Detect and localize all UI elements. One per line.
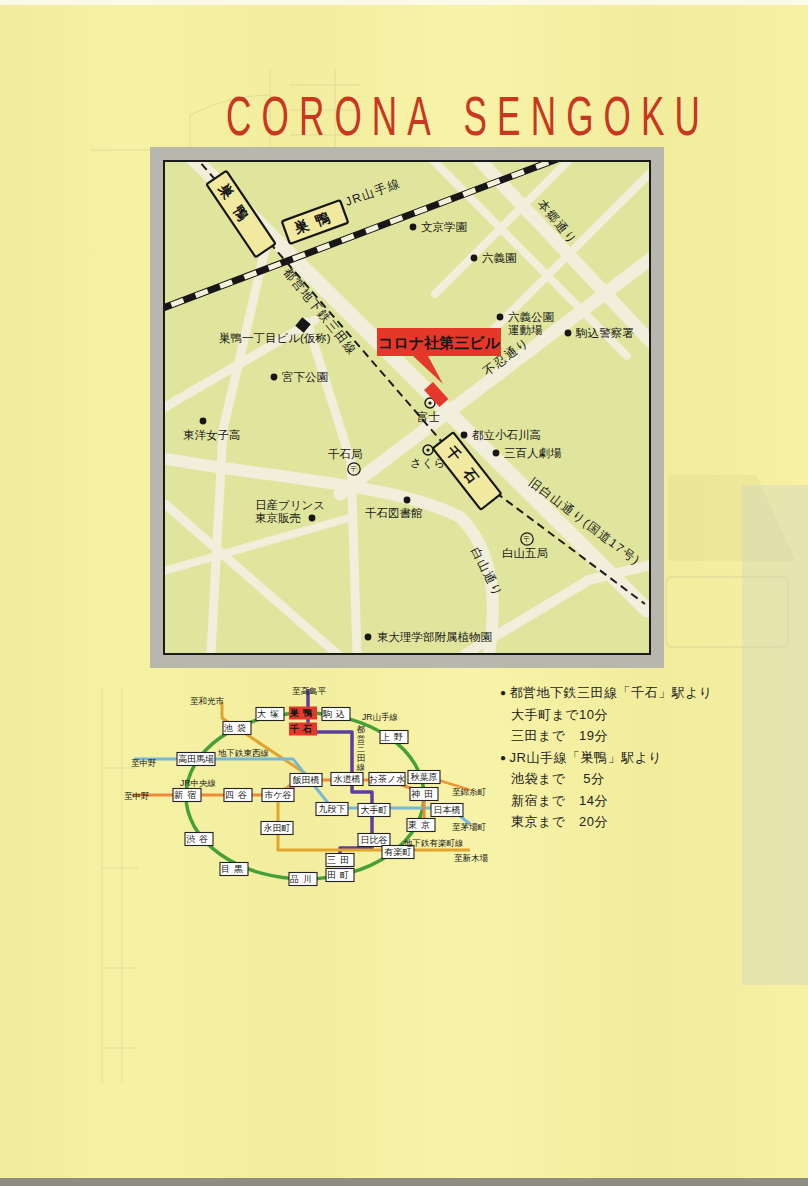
diagram-line-label: 地下鉄有楽町線	[403, 838, 464, 848]
diagram-station: 日本橋	[431, 804, 463, 817]
access-line-time: 大手町まで10分	[500, 704, 695, 726]
diagram-station-label: 大手町	[361, 805, 388, 815]
landmark-dot	[365, 634, 372, 641]
corona-label: コロナ社第三ビル	[378, 334, 500, 351]
diagram-station-label: 巣鴨	[289, 708, 316, 718]
landmark-label: 運動場	[508, 324, 543, 336]
diagram-line-label: 至新木場	[454, 853, 489, 863]
diagram-station: 新宿	[173, 789, 201, 802]
landmark: 都立小石川高	[461, 429, 541, 441]
diagram-station-label: お茶ノ水	[369, 774, 405, 784]
diagram-station-label: 秋葉原	[411, 772, 438, 782]
diagram-station-label: 水道橋	[334, 774, 361, 784]
diagram-station-label: 上野	[381, 732, 407, 742]
diagram-station: 駒込	[322, 708, 350, 721]
post-office-label: 千石局	[328, 448, 363, 460]
rail-network-diagram: 大塚巣鴨駒込千石池袋上野高田馬場新宿四谷市ケ谷飯田橋水道橋お茶ノ水秋葉原神田九段…	[118, 672, 513, 900]
diagram-station: 品川	[289, 873, 317, 886]
diagram-station: 東京	[407, 819, 435, 832]
diagram-line-label-char: 線	[356, 762, 366, 772]
bullet-icon: ●	[500, 687, 507, 698]
road-name-label: JR山手線	[343, 176, 402, 209]
diagram-station-label: 田町	[327, 870, 353, 880]
road	[211, 250, 265, 653]
access-line-time: 新宿まで 14分	[500, 790, 695, 812]
diagram-line-label: JR中央線	[180, 778, 216, 788]
diagram-station-label: 品川	[290, 874, 316, 884]
postal-mark-icon: 〒	[523, 535, 531, 544]
landmark-label: 東洋女子高	[183, 429, 241, 441]
diagram-station: 市ケ谷	[262, 789, 294, 802]
landmark-label: 三百人劇場	[504, 447, 562, 459]
diagram-station: 秋葉原	[408, 771, 440, 784]
bullet-icon: ●	[500, 752, 507, 763]
diagram-station-label: 日比谷	[361, 835, 388, 845]
landmark-dot	[493, 450, 500, 457]
landmark: 宮下公園	[271, 371, 328, 383]
post-office-label: 白山五局	[502, 547, 548, 559]
diagram-station: 田町	[326, 869, 354, 882]
access-line-time: 三田まで 19分	[500, 725, 695, 747]
diagram-station: 神田	[410, 788, 438, 801]
diagram-station-label: 市ケ谷	[264, 790, 291, 800]
diagram-station: 目黒	[220, 863, 248, 876]
landmark-label: 六義公園	[508, 311, 554, 323]
diagram-station-label: 高田馬場	[178, 754, 214, 764]
diagram-station: 巣鴨	[289, 707, 317, 720]
landmark-dot	[309, 515, 316, 522]
bank-label: 富士	[417, 411, 440, 423]
diagram-line-label: JR山手線	[362, 712, 398, 722]
access-line-time: 東京まで 20分	[500, 811, 695, 833]
diagram-station: 永田町	[261, 822, 293, 835]
diagram-station-label: 駒込	[322, 709, 349, 719]
diagram-station-label: 日本橋	[434, 805, 461, 815]
bank-logo-icon-center	[426, 448, 429, 451]
landmark: 文京学園	[410, 221, 467, 233]
diagram-station-label: 永田町	[264, 823, 291, 833]
landmark-label: 文京学園	[421, 221, 467, 233]
diagram-station: 水道橋	[331, 773, 363, 786]
diagram-station: 九段下	[316, 803, 348, 816]
access-info: ●都営地下鉄三田線「千石」駅より大手町まで10分三田まで 19分●JR山手線「巣…	[500, 682, 695, 833]
diagram-station-label: 飯田橋	[293, 775, 320, 785]
landmark-label: 駒込警察署	[575, 327, 634, 339]
landmark-dot	[271, 374, 278, 381]
access-line-heading: ●JR山手線「巣鴨」駅より	[500, 747, 695, 769]
page-title: CORONA SENGOKU	[226, 84, 554, 142]
diagram-line-label: 地下鉄東西線	[217, 748, 269, 758]
scan-band-right	[742, 485, 808, 985]
landmark: 東大理学部附属植物園	[365, 631, 492, 643]
diagram-station: 日比谷	[358, 834, 390, 847]
diagram-line-label-char: 三	[357, 743, 366, 753]
landmark-label: 都立小石川高	[472, 429, 541, 441]
diagram-station: 渋谷	[185, 833, 213, 846]
diagram-station: 大塚	[256, 708, 284, 721]
access-line-heading: ●都営地下鉄三田線「千石」駅より	[500, 682, 695, 704]
diagram-line-label: 至茅場町	[452, 822, 487, 832]
diagram-line-label: 至中野	[131, 758, 157, 768]
landmark-dot	[404, 497, 411, 504]
landmark: 東洋女子高	[183, 418, 241, 441]
diagram-station-label: 神田	[411, 789, 437, 799]
diagram-line-label: 至和光市	[190, 696, 225, 706]
landmark-label: 巣鴨一丁目ビル(仮称)	[219, 332, 331, 344]
diagram-line-label: 至中野	[124, 791, 150, 801]
scanned-access-map-page: { "page": { "title": "CORONA SENGOKU" },…	[0, 0, 808, 1186]
landmark-dot	[461, 432, 468, 439]
diagram-station: 飯田橋	[290, 774, 322, 787]
diagram-station-label: 新宿	[174, 790, 200, 800]
landmark-dot	[471, 255, 478, 262]
postal-mark-icon: 〒	[350, 465, 358, 474]
diagram-line-label-char: 田	[357, 753, 366, 763]
scan-edge-top	[0, 0, 808, 5]
diagram-line-label: 至高島平	[292, 686, 327, 696]
diagram-station: 三田	[326, 854, 354, 867]
bank-label: さくら	[410, 457, 445, 469]
diagram-station: 上野	[380, 731, 408, 744]
diagram-line-label: 至錦糸町	[452, 787, 487, 797]
diagram-station: 高田馬場	[177, 753, 215, 766]
landmark-label: 千石図書館	[365, 507, 423, 519]
diagram-station: 池袋	[223, 722, 251, 735]
diagram-station: 大手町	[358, 804, 390, 817]
post-office: 〒千石局	[328, 448, 363, 475]
map-station: 千石	[433, 432, 502, 509]
street-map: JR山手線都営地下鉄三田線本郷通り不忍通り旧白山通り(国道17号)白山通り巣鴨巣…	[163, 160, 651, 655]
landmark: 日産プリンス東京販売	[255, 499, 325, 524]
landmark-dot	[200, 418, 207, 425]
map-station: 巣鴨	[206, 171, 275, 257]
map-station: 巣鴨	[282, 200, 348, 244]
landmark: 駒込警察署	[565, 327, 634, 339]
post-office: 〒白山五局	[502, 533, 548, 559]
diagram-station: 千石	[289, 723, 317, 736]
diagram-line-label-vertical: 都営三田線	[356, 724, 366, 772]
landmark-dot	[410, 224, 417, 231]
landmark-label: 日産プリンス	[255, 499, 325, 511]
diagram-line-label-char: 都	[356, 724, 366, 734]
landmark-label: 東京販売	[255, 512, 301, 524]
street-map-frame: JR山手線都営地下鉄三田線本郷通り不忍通り旧白山通り(国道17号)白山通り巣鴨巣…	[150, 147, 664, 668]
diagram-station-label: 大塚	[257, 709, 283, 719]
diagram-station-label: 三田	[327, 855, 353, 865]
diagram-station-label: 目黒	[221, 864, 247, 874]
diagram-station-label: 千石	[289, 724, 316, 734]
diagram-station-label: 東京	[408, 820, 434, 830]
diagram-station-label: 九段下	[319, 804, 346, 814]
landmark-label: 東大理学部附属植物園	[377, 631, 492, 643]
landmark-dot	[497, 314, 504, 321]
diagram-station: お茶ノ水	[369, 773, 405, 786]
diagram-line-label-char: 営	[357, 734, 366, 744]
street-map-svg: JR山手線都営地下鉄三田線本郷通り不忍通り旧白山通り(国道17号)白山通り巣鴨巣…	[165, 162, 649, 653]
landmark-label: 六義園	[482, 252, 517, 264]
access-line-time: 池袋まで 5分	[500, 768, 695, 790]
diagram-station-label: 四谷	[225, 790, 251, 800]
diagram-station: 四谷	[224, 789, 252, 802]
landmark-dot	[565, 330, 572, 337]
diagram-station-label: 渋谷	[186, 834, 212, 844]
landmark-label: 宮下公園	[282, 371, 328, 383]
diagram-station-label: 有楽町	[384, 847, 412, 857]
bank-logo-icon-center	[428, 401, 431, 404]
scan-edge-bottom	[0, 1178, 808, 1186]
diagram-station-label: 池袋	[223, 723, 250, 733]
